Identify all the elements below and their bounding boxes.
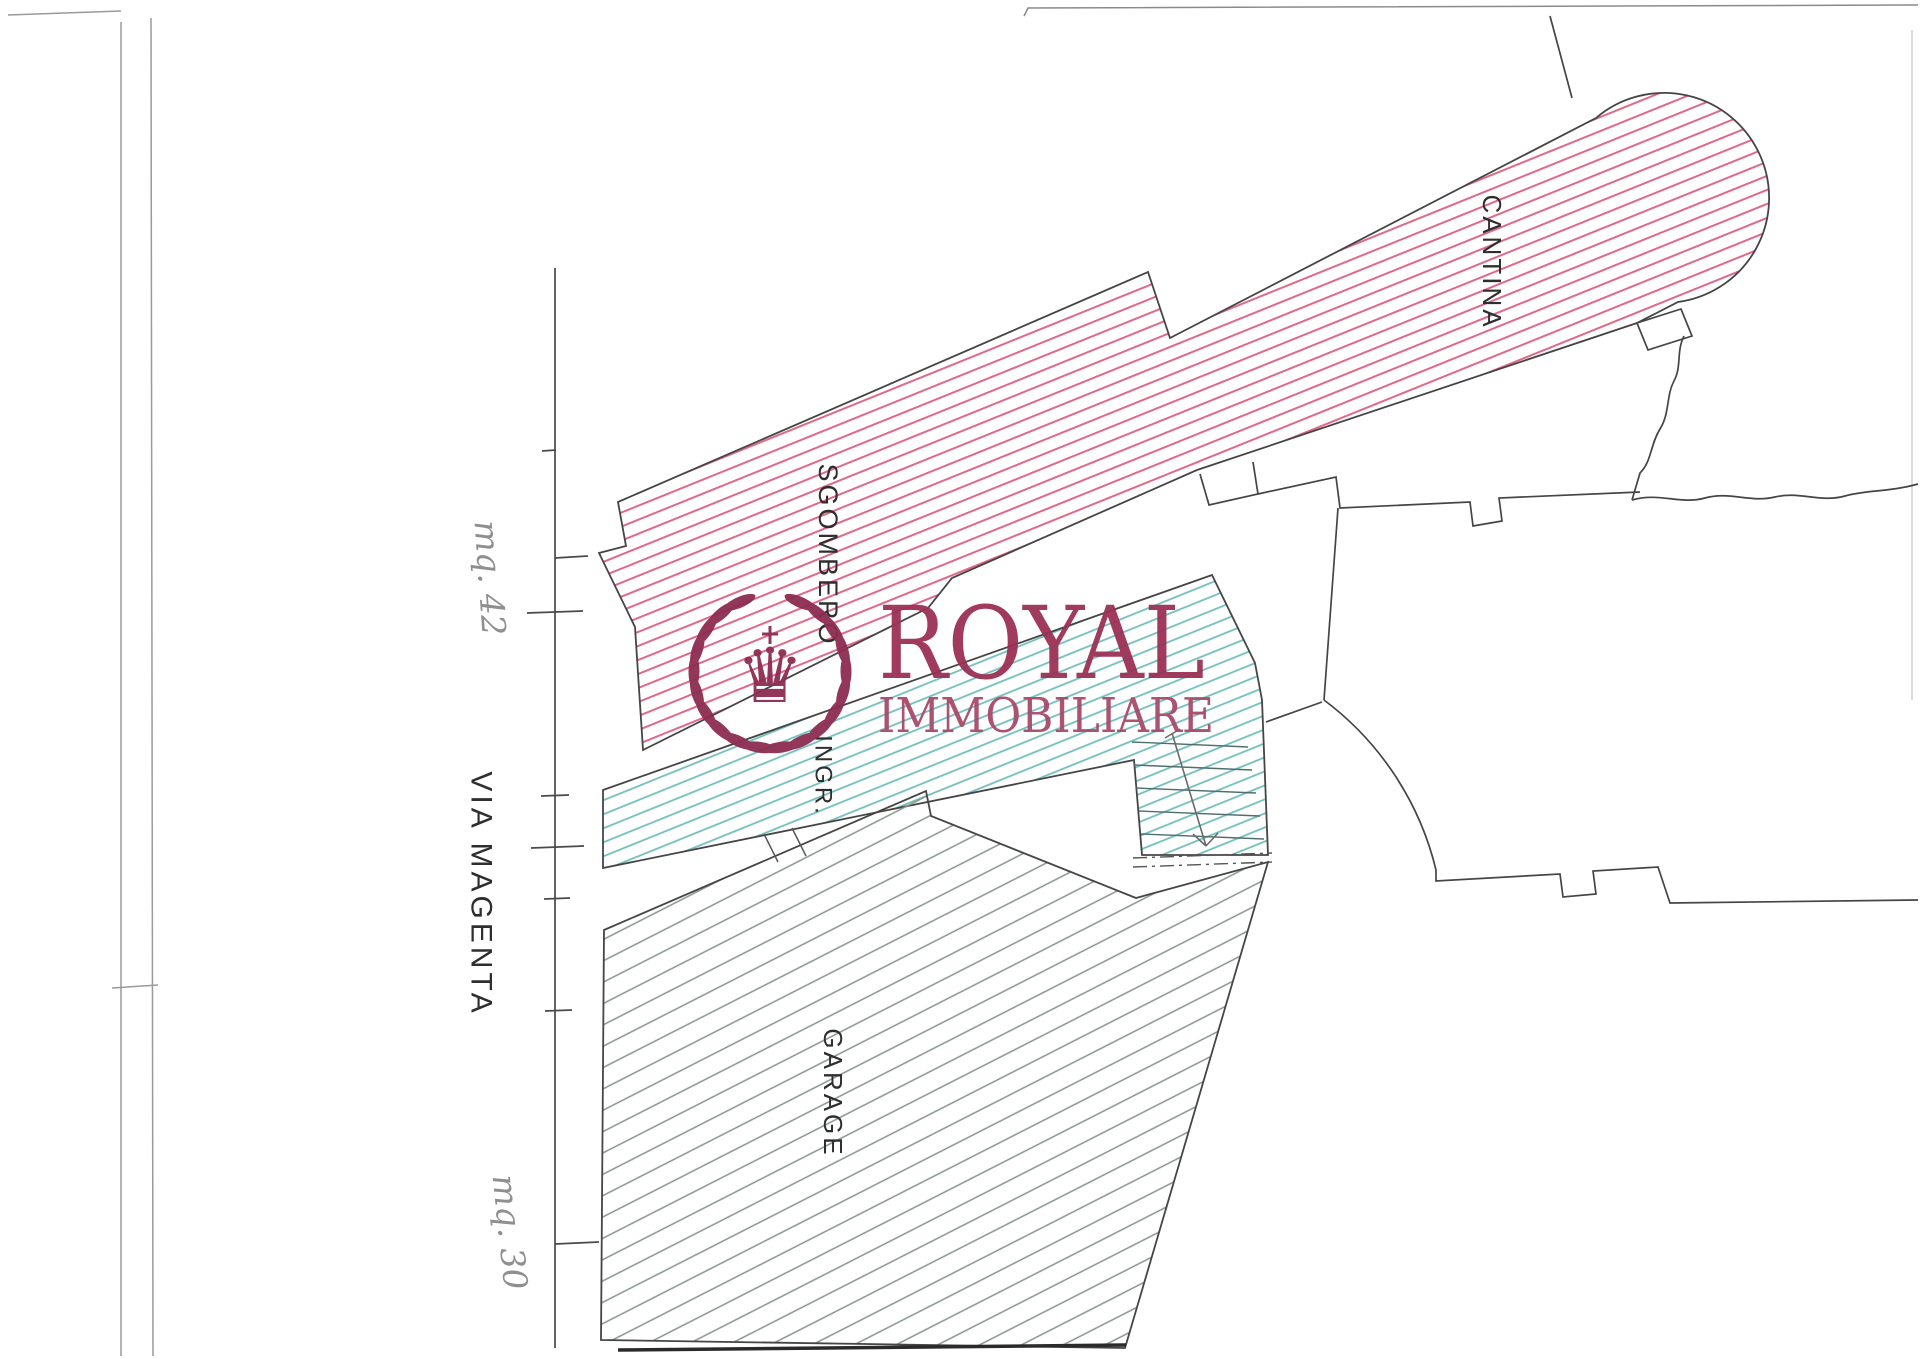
scanned-floor-plan: SGOMBERO CANTINA INGR. GARAGE VIA MAGENT… — [0, 0, 1920, 1358]
street-tick — [555, 1242, 599, 1244]
street-label-via-magenta: VIA MAGENTA — [465, 771, 498, 1016]
wall-connector — [1266, 702, 1322, 722]
street-tick — [542, 450, 556, 451]
room-label-ingresso: INGR. — [810, 735, 837, 817]
room-label-garage: GARAGE — [818, 1028, 848, 1157]
floor-plan-drawing: SGOMBERO CANTINA INGR. GARAGE VIA MAGENT… — [0, 0, 1920, 1358]
broken-wall-wavy-horizontal — [1632, 484, 1918, 500]
bottom-scan-line — [618, 1345, 1126, 1350]
street-tick — [555, 556, 588, 558]
wall-with-notch — [1258, 477, 1640, 526]
street-tick — [544, 898, 570, 899]
broken-wall-wavy-vertical — [1632, 336, 1684, 500]
left-page-fold-line — [151, 18, 153, 1356]
street-tick — [541, 795, 569, 796]
top-right-sheet-edge — [1024, 5, 1918, 16]
street-tick — [545, 1010, 572, 1011]
wall-connector-top — [1550, 16, 1572, 98]
logo-name: ROYAL — [878, 585, 1205, 702]
left-edge-tick — [112, 985, 158, 988]
street-boundary — [527, 268, 599, 1348]
top-left-edge-line — [8, 11, 121, 15]
room-label-cantina: CANTINA — [1477, 194, 1507, 329]
handwritten-area-note-mq30: mq. 30 — [485, 1173, 536, 1292]
logo-subtitle: IMMOBILIARE — [878, 688, 1214, 744]
wall-step — [1200, 462, 1258, 505]
handwritten-area-note-mq42: mq. 42 — [467, 519, 514, 637]
garage-area — [601, 791, 1268, 1348]
curved-wall-arc — [1324, 700, 1918, 903]
crown-icon: ♛ — [736, 631, 804, 720]
wall-vertical — [1324, 508, 1338, 700]
street-tick — [527, 611, 583, 613]
street-tick — [531, 846, 584, 848]
